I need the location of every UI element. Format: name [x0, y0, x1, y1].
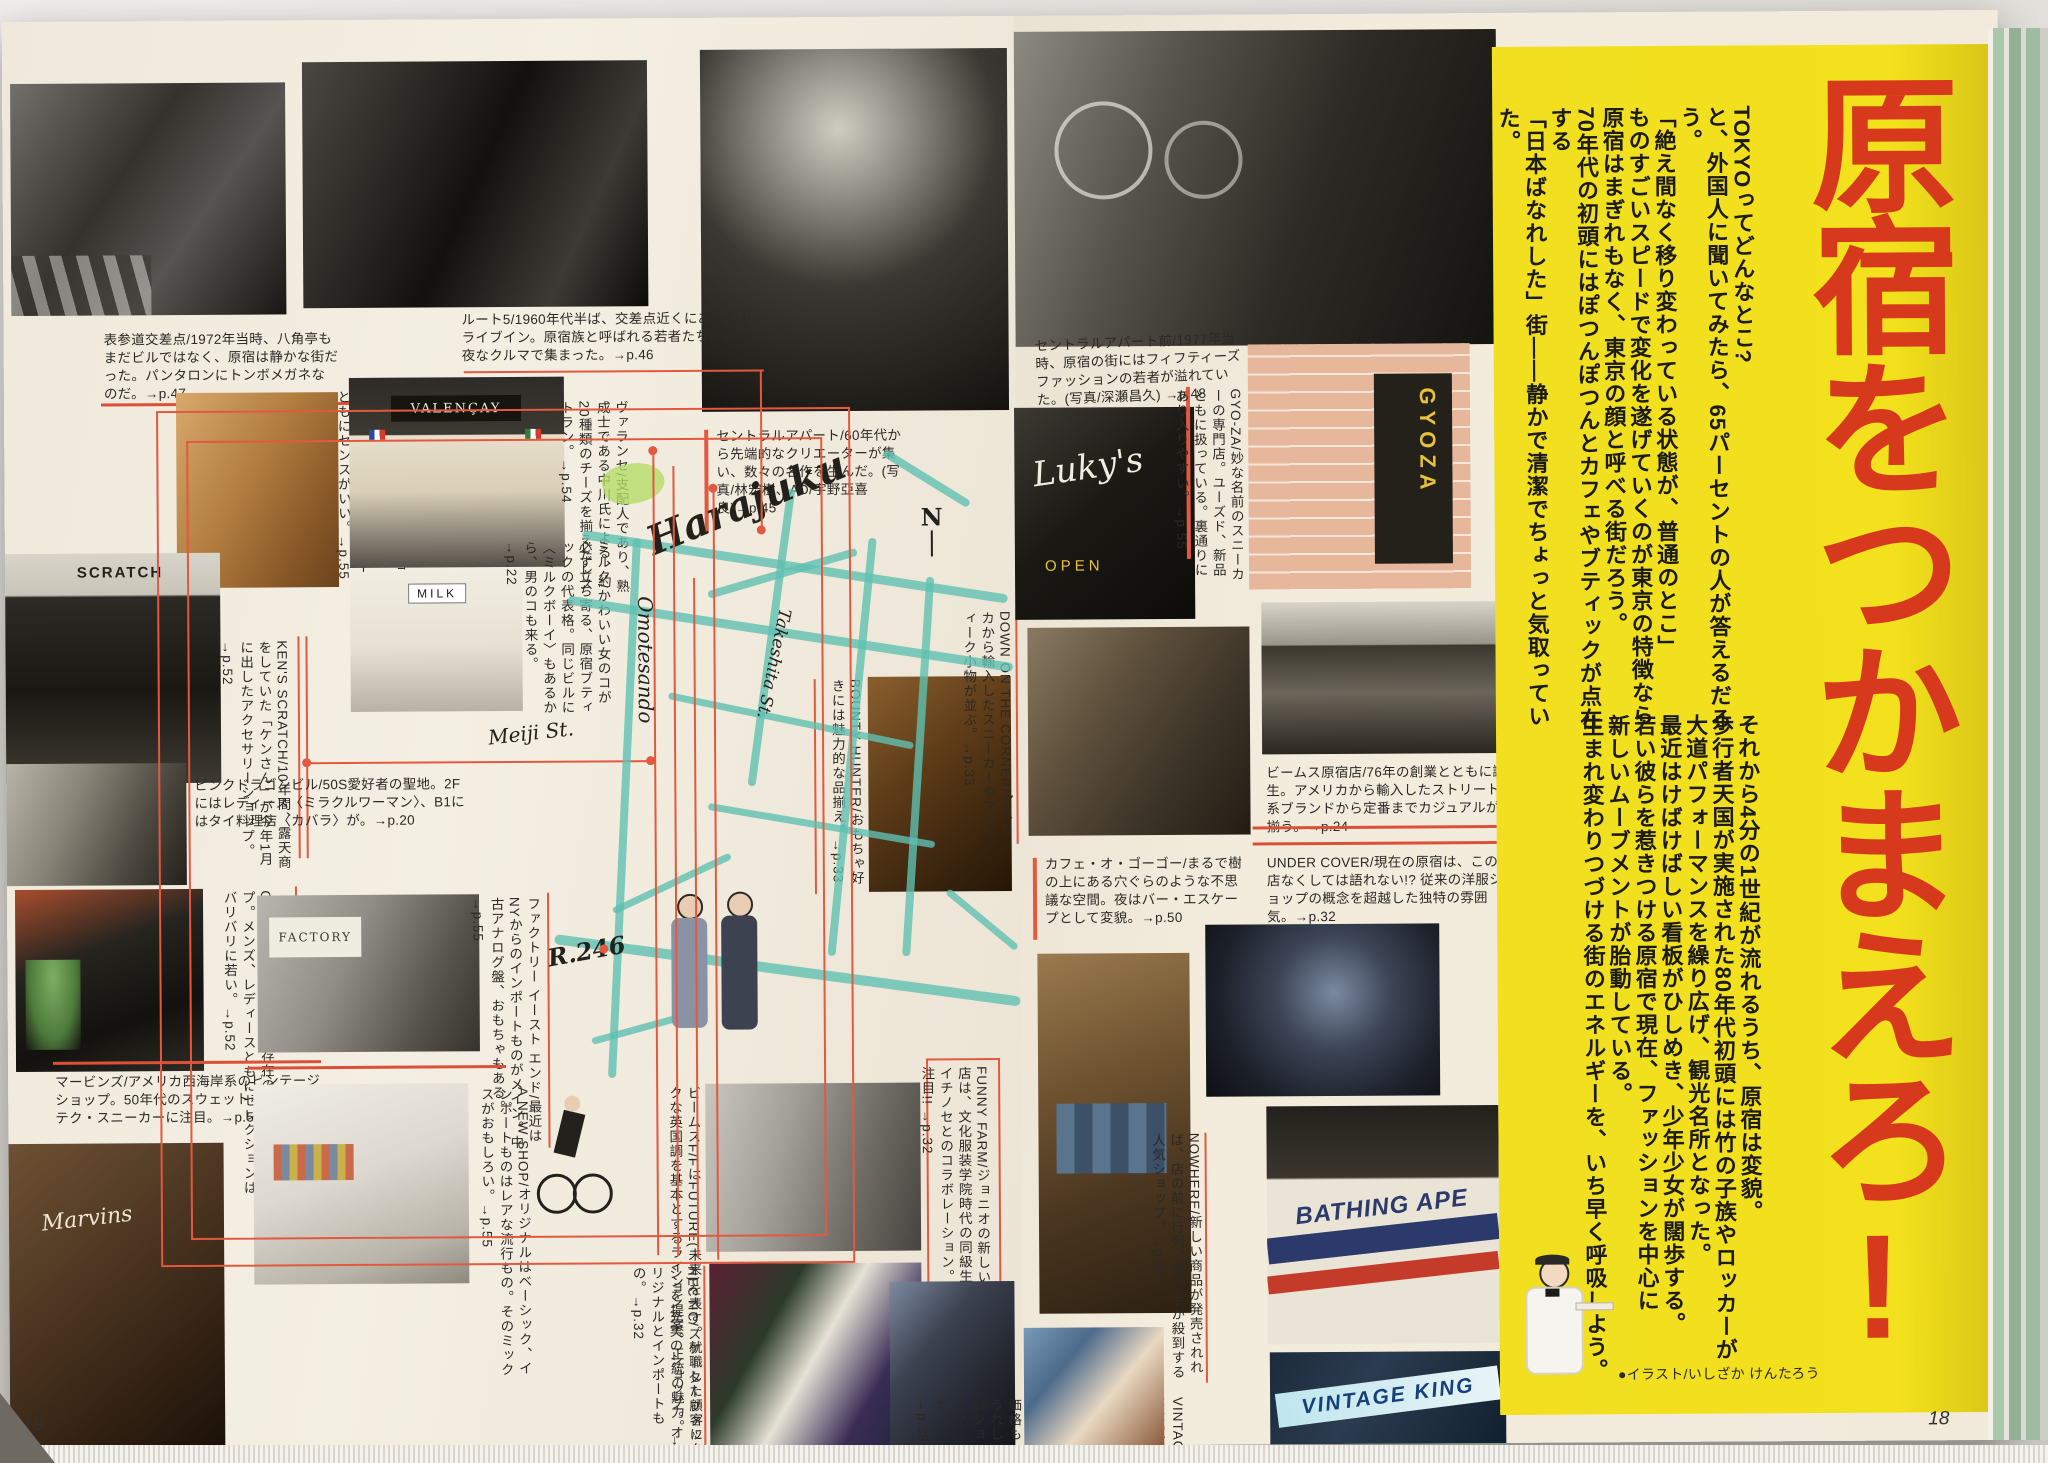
gyoza-window-letters: GYOZA [1414, 387, 1441, 547]
photo-beams-harajuku [1261, 601, 1502, 754]
lukys-open-sign: OPEN [1045, 557, 1104, 574]
magazine-spread: 表参道交差点/1972年当時、八角亭もまだビルではなく、原宿は静かな街だった。パ… [2, 10, 2007, 1452]
photo-hoop-dancers [1014, 29, 1498, 347]
hula-hoop-detail [1164, 121, 1242, 199]
red-bar [1033, 858, 1038, 940]
photo-bathing-ape-shirt: BATHING APE [1266, 1105, 1499, 1344]
palm-plant-detail [25, 960, 81, 1050]
photo-street-snap-smiling-guy [1024, 1327, 1165, 1446]
red-dot [648, 446, 657, 455]
red-dot [757, 525, 766, 534]
lukys-sign: Luky's [1030, 440, 1146, 496]
caption-cafe-o-gogo: カフェ・オ・ゴーゴー/まるで樹の上にある穴ぐらのような不思議な空間。夜はバー・エ… [1045, 855, 1245, 929]
table-corner-shadow [0, 1393, 55, 1463]
zebra-crossing-detail [11, 255, 151, 316]
caption-funny-farm: FUNNY FARM/ジョニオの新しい店は、文化服装学院時代の同級生イチノセとの… [934, 1066, 991, 1288]
caption-hectic: HECTIC/スケーターファッション充実のショップ。オリジナルとインポートもの。… [657, 1266, 702, 1448]
red-dot [708, 484, 717, 493]
caption-down-on-the-corner: DOWN ON THE CORNER/アメリカから輸入したスニーカーやアンティー… [967, 611, 1014, 846]
caption-under-cover: UNDER COVER/現在の原宿は、この店なくしては語れない!? 従来の洋服シ… [1267, 853, 1512, 927]
page-bottom-edge [0, 1445, 2048, 1463]
hula-hoop-detail [1054, 101, 1153, 200]
photo-gyoza-store: GYOZA [1248, 343, 1471, 589]
page-edge-stack [1988, 28, 2048, 1440]
caption-route5: ルート5/1960年代半ば、交差点近くにあったドライブイン。原宿族と呼ばれる若者… [461, 309, 761, 365]
waiter-illustration [1505, 1258, 1616, 1399]
photo-vintage-king-sign: VINTAGE KING [1270, 1351, 1507, 1444]
photo-lukys: Luky's OPEN [1014, 407, 1195, 620]
red-dot [599, 944, 608, 953]
vintage-king-sign: VINTAGE KING [1275, 1365, 1502, 1427]
photo-scaffold-group [1027, 626, 1250, 835]
north-arrow-line [931, 530, 933, 556]
photo-under-cover-interior [1205, 923, 1440, 1096]
intro-block-1: TOKYOってどんなとこ? と、外国人に聞いてみたら、65パーセントの人が答える… [1502, 105, 1758, 752]
photo-route5-night-cars [302, 60, 648, 308]
feature-title: 原宿をつかまえろ! [1796, 68, 1952, 1369]
illustration-credit: ●イラスト/いしざか けんたろう [1618, 1364, 1878, 1384]
map-north-arrow: N [921, 502, 943, 531]
marvins-sign: Marvins [26, 1197, 149, 1240]
photo-omotesando-crossing [10, 82, 286, 316]
caption-gyoza: GYO-ZA/妙な名前のスニーカーの専門店。ユーズド、新品ともに扱っている。裏通… [1194, 389, 1245, 589]
page-number-right: 18 [1928, 1408, 1949, 1430]
magazine-spread-photo: 表参道交差点/1972年当時、八角亭もまだビルではなく、原宿は静かな街だった。パ… [0, 0, 2048, 1463]
feature-panel: 原宿をつかまえろ! TOKYOってどんなとこ? と、外国人に聞いてみたら、65パ… [1492, 44, 2000, 1415]
red-connector-frame [186, 437, 827, 1240]
